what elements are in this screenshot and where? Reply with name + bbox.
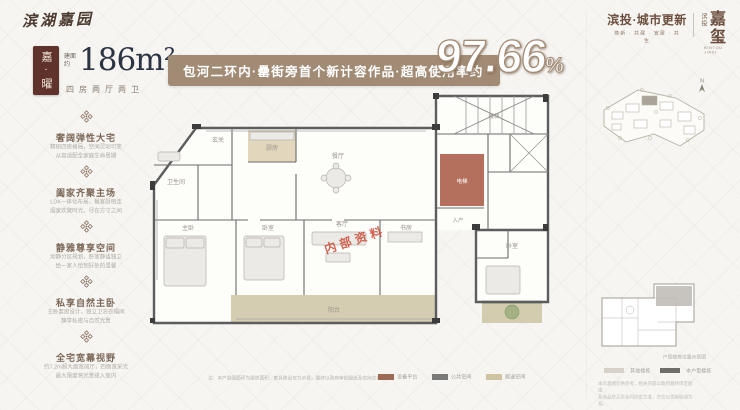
svg-text:N: N — [700, 79, 704, 85]
svg-text:楼梯: 楼梯 — [488, 112, 500, 120]
legend-swatch-other — [604, 368, 624, 373]
svg-text:书房: 书房 — [400, 224, 412, 232]
svg-text:卫生间: 卫生间 — [167, 178, 185, 186]
legend-label-bonus: 赠送空间 — [505, 373, 525, 381]
logo-divider — [693, 13, 694, 37]
svg-text:卧室: 卧室 — [506, 242, 518, 250]
svg-text:玄关: 玄关 — [212, 136, 224, 144]
unit-name-text: 嘉·曜 — [38, 51, 54, 91]
legend-item-equipment: 设备平台 — [378, 372, 421, 381]
legend-swatch-public — [432, 374, 448, 380]
legend-label-current: 本户型楼栋 — [686, 367, 712, 375]
unit-name-badge: 嘉·曜 — [33, 46, 59, 95]
area-value: 186m² — [79, 45, 175, 76]
feature-item-4: 私享自然主卧 主卧套房设计，独立卫浴衣帽间 静享私密与自然光景 — [27, 275, 145, 330]
legend-swatch-current — [660, 368, 680, 373]
sidebar-separator — [586, 10, 587, 400]
feature-desc: 阖家欢聚时光，尽在方寸之间 — [32, 208, 141, 216]
feature-item-1: 奢阔弹性大宅 精研四房格局，空间灵动可变 从容适配全家庭生命周期 — [27, 110, 145, 165]
city-renewal-logo: 滨投·城市更新 焕新 · 共建 · 宜居 · 共生 — [606, 11, 688, 47]
feature-item-5: 全宅宽幕视野 约7.2m超大面宽阔厅，四面宽采光 最大限度将光景揽入室内 — [27, 330, 145, 385]
footer-disclaimer: 注：本户型图面积为建筑面积，家具陈设仅为示意，最终以政府审批图纸及实际交付为准。 — [208, 374, 368, 381]
unit-layout-text: 四房两厅两卫 — [66, 84, 144, 95]
rate-value: 97.66 — [433, 30, 549, 82]
ornament-icon — [80, 275, 93, 288]
svg-text:入户: 入户 — [452, 216, 463, 224]
feature-item-2: 阖家齐聚主场 LDK一体化布局，餐客厨相连 阖家欢聚时光，尽在方寸之间 — [27, 165, 145, 220]
feature-item-3: 静雅尊享空间 动静分区规划，卧室静谧独立 给一家人恰到好处的温馨 — [27, 220, 145, 275]
city-renewal-title: 滨投·城市更新 — [606, 11, 688, 28]
feature-desc: LDK一体化布局，餐客厨相连 — [32, 199, 141, 207]
project-logo-prefix: 滨投 — [699, 13, 708, 27]
legend-item-public: 公共空间 — [432, 372, 475, 381]
feature-title: 阖家齐聚主场 — [27, 186, 145, 199]
feature-title: 私享自然主卧 — [27, 296, 145, 309]
svg-text:厨房: 厨房 — [266, 144, 278, 152]
footer-legend: 设备平台 公共空间 赠送空间 — [378, 372, 529, 381]
svg-text:卧室: 卧室 — [262, 224, 274, 232]
project-logo-sub: BINTOU JIAXI — [704, 46, 735, 55]
feature-desc: 静享私密与自然光景 — [32, 318, 141, 326]
sidebar-disclaimer: 本示意图仅供参考，相关内容以政府最终审定图纸 及商品房买卖合同约定为准，方位以实… — [598, 381, 696, 408]
feature-desc: 约7.2m超大面宽阔厅，四面宽采光 — [32, 364, 141, 372]
legend-item-bonus: 赠送空间 — [486, 372, 529, 381]
feature-desc: 最大限度将光景揽入室内 — [32, 373, 141, 381]
ornament-icon — [80, 330, 93, 343]
keyplan-caption: 户型楼栋位置示意图 — [620, 353, 706, 360]
svg-text:客厅: 客厅 — [336, 220, 348, 228]
sidebar-disclaimer-line1: 本示意图仅供参考，相关内容以政府最终审定图纸 — [598, 381, 696, 395]
floor-plan: 卫生间 厨房 餐厅 玄关 客厅 主卧 卧室 书房 阳台 楼梯 电梯 卧室 入户 — [136, 90, 560, 356]
plant — [505, 305, 519, 319]
ornament-icon — [80, 220, 93, 233]
highlighted-unit — [656, 286, 692, 306]
legend-label-public: 公共空间 — [451, 373, 471, 381]
usage-rate-number: 97.66% — [434, 33, 567, 79]
ornament-icon — [80, 110, 93, 123]
feature-desc: 给一家人恰到好处的温馨 — [32, 263, 141, 271]
feature-desc: 精研四房格局，空间灵动可变 — [32, 144, 141, 152]
city-renewal-subtitle: 焕新 · 共建 · 宜居 · 共生 — [614, 29, 680, 43]
legend-swatch-bonus — [486, 374, 502, 380]
unit-area: 建面约 186m² — [64, 45, 175, 76]
site-plan: N — [596, 76, 714, 168]
feature-title: 全宅宽幕视野 — [27, 351, 145, 364]
svg-text:主卧: 主卧 — [182, 224, 194, 232]
legend-swatch-equipment — [378, 374, 394, 380]
sidebar-disclaimer-line2: 及商品房买卖合同约定为准，方位以实际勘测为准。 — [598, 395, 696, 409]
svg-text:电梯: 电梯 — [456, 177, 468, 185]
key-plan — [598, 278, 706, 352]
project-logo: 滨投 嘉玺 BINTOU JIAXI — [699, 11, 740, 58]
feature-desc: 从容适配全家庭生命周期 — [32, 153, 141, 161]
feature-desc: 动静分区规划，卧室静谧独立 — [32, 254, 141, 262]
area-prefix: 建面约 — [64, 53, 77, 69]
project-logo-mark: 滨投 嘉玺 — [699, 11, 740, 46]
feature-list: 奢阔弹性大宅 精研四房格局，空间灵动可变 从容适配全家庭生命周期 阖家齐聚主场 … — [27, 110, 145, 385]
developer-logos: 滨投·城市更新 焕新 · 共建 · 宜居 · 共生 滨投 嘉玺 BINTOU J… — [606, 11, 740, 58]
compass-icon: N — [699, 79, 705, 93]
percent-sign: % — [544, 54, 564, 77]
poster-canvas: 滨湖嘉园 嘉·曜 建面约 186m² 四房两厅两卫 奢阔弹性大宅 精研四房格局，… — [0, 0, 740, 410]
feature-title: 静雅尊享空间 — [27, 241, 145, 254]
legend-label-equipment: 设备平台 — [397, 373, 417, 381]
brand-logo: 滨湖嘉园 — [22, 8, 95, 32]
legend-label-other: 其他楼栋 — [630, 367, 650, 375]
svg-text:餐厅: 餐厅 — [332, 152, 344, 160]
project-logo-name: 嘉玺 — [710, 11, 740, 46]
svg-text:阳台: 阳台 — [328, 306, 340, 314]
sidebar-legend: 其他楼栋 本户型楼栋 — [604, 366, 716, 375]
feature-desc: 主卧套房设计，独立卫浴衣帽间 — [32, 309, 141, 317]
feature-title: 奢阔弹性大宅 — [27, 131, 145, 144]
ornament-icon — [80, 165, 93, 178]
